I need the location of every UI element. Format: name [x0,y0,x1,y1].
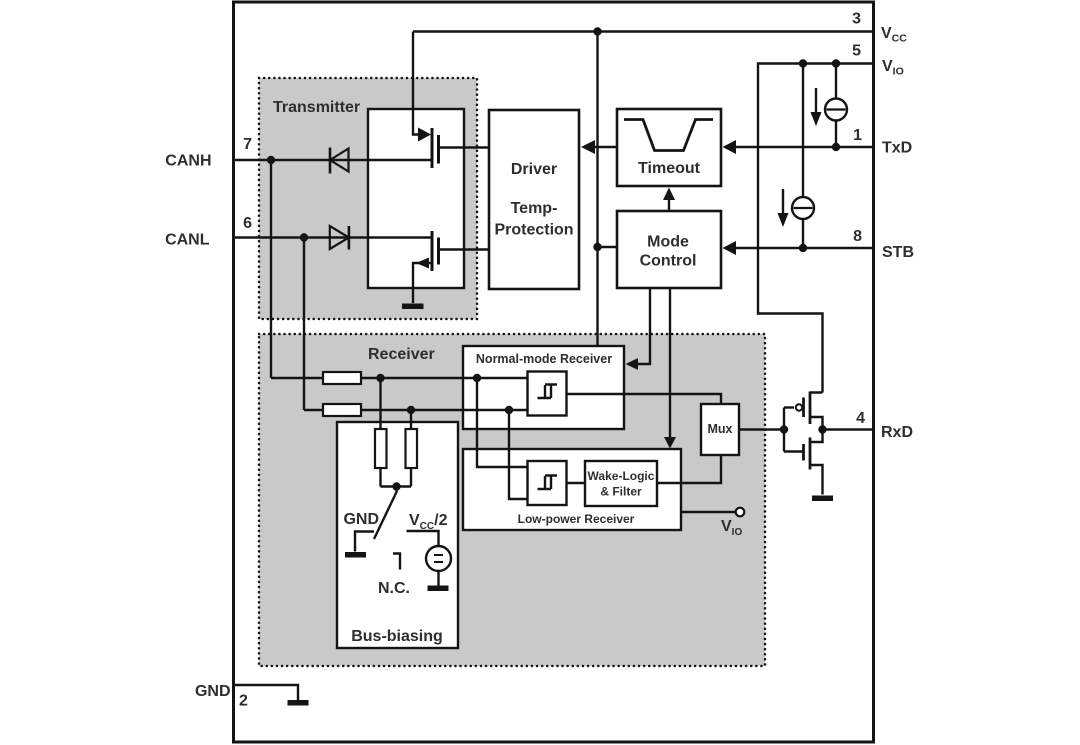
svg-text:4: 4 [856,410,865,427]
svg-text:6: 6 [243,215,252,232]
svg-text:3: 3 [852,11,861,28]
svg-text:Mux: Mux [708,422,733,436]
svg-text:5: 5 [852,43,861,60]
svg-text:GND: GND [195,683,231,700]
svg-text:Temp-: Temp- [511,200,558,217]
svg-text:N.C.: N.C. [378,580,410,597]
svg-text:Control: Control [640,253,697,270]
svg-text:Low-power Receiver: Low-power Receiver [518,512,635,526]
svg-text:Wake-Logic: Wake-Logic [588,469,655,483]
svg-text:Bus-biasing: Bus-biasing [351,628,443,645]
svg-text:8: 8 [853,228,862,245]
svg-text:CANL: CANL [165,232,210,249]
svg-text:CANH: CANH [165,153,211,170]
svg-text:Protection: Protection [494,222,573,239]
svg-text:2: 2 [239,693,248,710]
svg-text:& Filter: & Filter [600,485,642,499]
svg-text:Timeout: Timeout [638,160,701,177]
svg-text:Transmitter: Transmitter [273,99,360,116]
svg-text:STB: STB [882,244,914,261]
svg-text:Driver: Driver [511,161,557,178]
svg-text:Receiver: Receiver [368,346,435,363]
svg-text:7: 7 [243,136,252,153]
svg-text:TxD: TxD [882,140,912,157]
svg-text:Normal-mode Receiver: Normal-mode Receiver [476,352,612,366]
svg-text:GND: GND [343,511,379,528]
svg-text:Mode: Mode [647,234,689,251]
svg-text:1: 1 [853,127,862,144]
svg-text:RxD: RxD [881,424,913,441]
